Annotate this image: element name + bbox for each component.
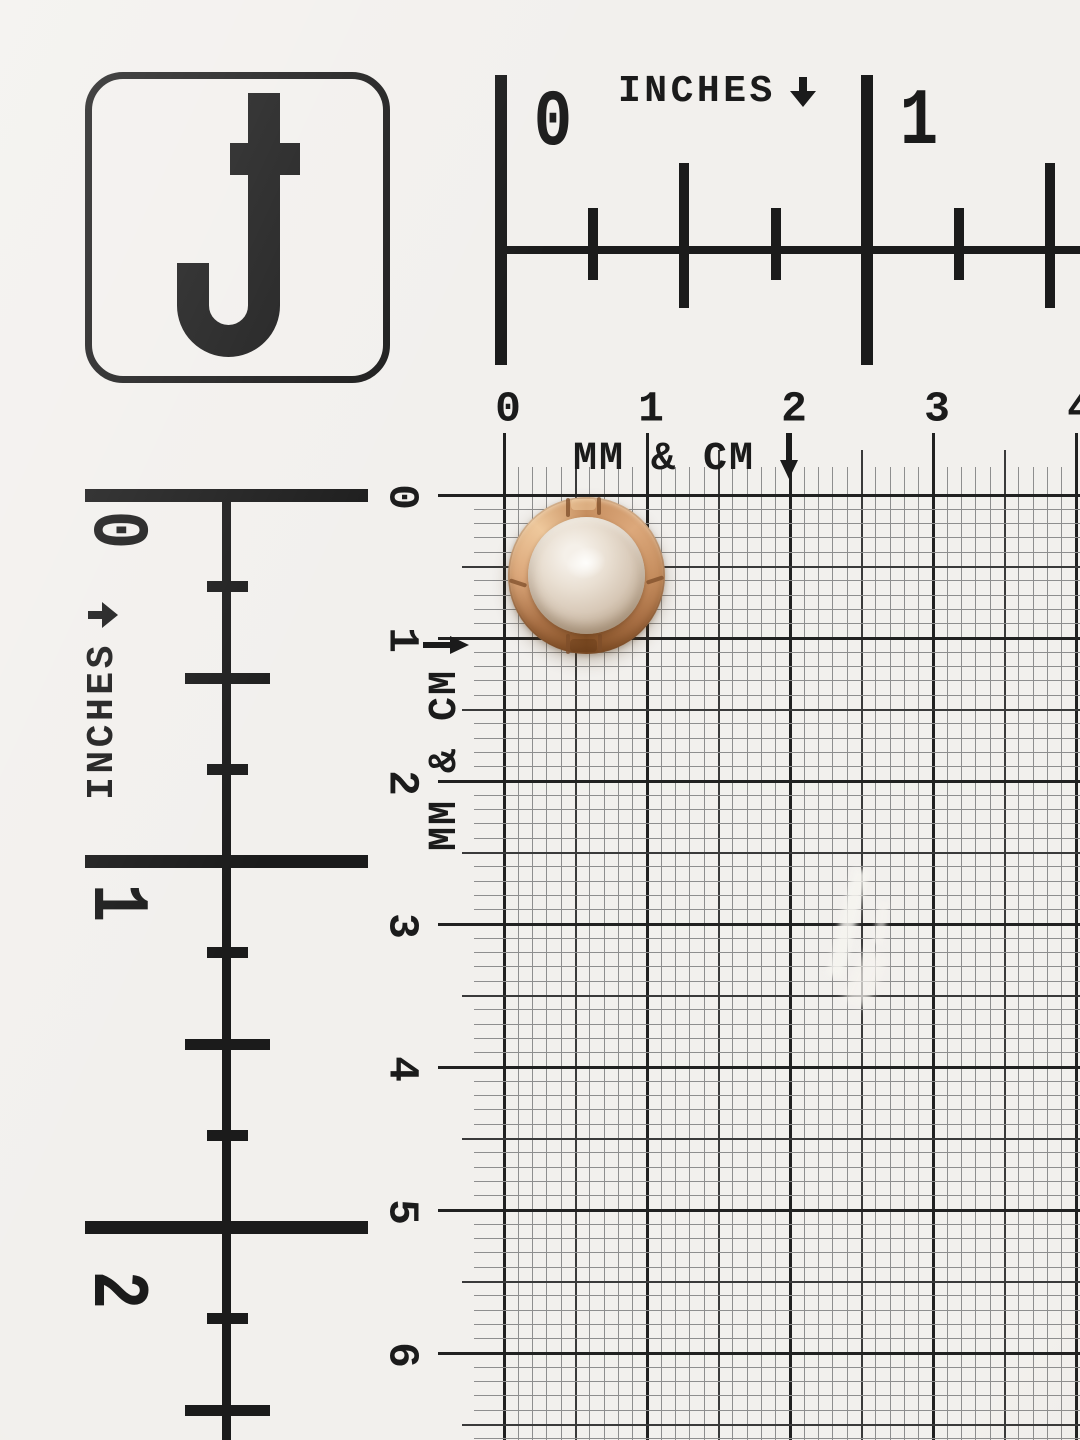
- rim-notch: [571, 499, 596, 510]
- scale-number: 0: [495, 388, 521, 431]
- inch-tick: [679, 163, 689, 308]
- grid-line-vertical: [503, 433, 506, 1440]
- grid-line-horizontal: [474, 723, 1080, 724]
- inches-label-left: INCHES: [83, 595, 123, 805]
- grid-line-horizontal: [474, 1295, 1080, 1296]
- down-arrow-icon: [779, 433, 799, 479]
- grid-line-horizontal: [474, 1167, 1080, 1168]
- grid-line-horizontal: [474, 938, 1080, 939]
- grid-line-horizontal: [474, 1381, 1080, 1382]
- inch-tick: [207, 1130, 248, 1141]
- mm-cm-label-text: MM & CM: [426, 669, 466, 851]
- grid-line-vertical: [775, 467, 776, 1440]
- grid-line-vertical: [904, 467, 905, 1440]
- rim-seam: [598, 634, 602, 652]
- inch-tick: [771, 208, 781, 280]
- grid-line-vertical: [704, 467, 705, 1440]
- logo-j-icon: [92, 79, 383, 376]
- grid-line-horizontal: [474, 666, 1080, 667]
- grid-line-horizontal: [474, 766, 1080, 767]
- grid-line-vertical: [1075, 433, 1078, 1440]
- grid-line-horizontal: [474, 895, 1080, 896]
- grid-line-horizontal: [438, 1352, 1080, 1355]
- inch-tick: [1045, 163, 1055, 308]
- grid-line-vertical: [875, 467, 876, 1440]
- logo-box: [85, 72, 390, 383]
- pearl-button: [508, 497, 665, 654]
- grid-line-vertical: [990, 467, 991, 1440]
- mm-cm-label-left: MM & CM: [423, 626, 469, 860]
- mm-cm-label-top: MM & CM: [573, 433, 799, 479]
- grid-line-horizontal: [474, 1009, 1080, 1010]
- inch-tick: [207, 581, 248, 592]
- inch-tick: [85, 489, 368, 502]
- inch-tick: [588, 208, 598, 280]
- grid-line-horizontal: [474, 1095, 1080, 1096]
- grid-line-horizontal: [474, 1438, 1080, 1439]
- inches-label-top: INCHES: [618, 73, 818, 111]
- scale-number: 0: [75, 511, 155, 549]
- down-arrow-icon: [788, 77, 818, 107]
- grid-line-horizontal: [474, 1324, 1080, 1325]
- grid-line-horizontal: [474, 752, 1080, 753]
- grid-line-horizontal: [474, 966, 1080, 967]
- inch-tick: [85, 1221, 368, 1234]
- scale-number: 3: [924, 388, 950, 431]
- grid-line-vertical: [961, 467, 962, 1440]
- grid-line-horizontal: [474, 1252, 1080, 1253]
- grid-line-vertical: [761, 467, 762, 1440]
- grid-line-horizontal: [474, 1052, 1080, 1053]
- scale-number: 1: [900, 83, 938, 163]
- ruler-baseline: [222, 495, 231, 1440]
- inches-label-text: INCHES: [618, 73, 776, 111]
- grid-line-vertical: [1047, 467, 1048, 1440]
- grid-line-horizontal: [474, 909, 1080, 910]
- ruler-baseline: [497, 246, 1080, 254]
- scale-number: 2: [781, 388, 807, 431]
- grid-line-vertical: [718, 450, 720, 1440]
- inches-label-text: INCHES: [84, 642, 122, 800]
- grid-line-horizontal: [474, 1267, 1080, 1268]
- grid-line-vertical: [847, 467, 848, 1440]
- grid-line-horizontal: [474, 738, 1080, 739]
- grid-line-horizontal: [474, 695, 1080, 696]
- scale-number: 5: [381, 1199, 424, 1225]
- inch-tick: [861, 75, 873, 365]
- scale-number: 4: [1067, 388, 1080, 431]
- grid-line-horizontal: [462, 1281, 1080, 1283]
- grid-line-horizontal: [438, 494, 1080, 497]
- grid-line-horizontal: [474, 881, 1080, 882]
- pearl: [528, 517, 645, 634]
- grid-line-vertical: [932, 433, 935, 1440]
- inch-tick: [954, 208, 964, 280]
- inch-tick: [185, 1405, 270, 1416]
- grid-line-horizontal: [474, 1081, 1080, 1082]
- grid-line-horizontal: [474, 1152, 1080, 1153]
- down-arrow-icon: [88, 600, 118, 630]
- grid-line-horizontal: [474, 652, 1080, 653]
- grid-line-horizontal: [438, 923, 1080, 926]
- grid-line-horizontal: [474, 866, 1080, 867]
- grid-line-horizontal: [474, 1338, 1080, 1339]
- inch-tick: [185, 673, 270, 684]
- grid-line-horizontal: [474, 1109, 1080, 1110]
- scale-number: 4: [381, 1056, 424, 1082]
- grid-line-horizontal: [474, 1224, 1080, 1225]
- grid-line-horizontal: [462, 852, 1080, 854]
- measurement-card-photo: 01234 0123456 MM & CM MM & CM 01 INCHES …: [0, 0, 1080, 1440]
- inch-tick: [207, 947, 248, 958]
- grid-line-vertical: [1033, 467, 1034, 1440]
- grid-line-vertical: [947, 467, 948, 1440]
- grid-line-horizontal: [474, 1124, 1080, 1125]
- grid-line-horizontal: [474, 809, 1080, 810]
- grid-line-vertical: [732, 467, 733, 1440]
- grid-line-horizontal: [474, 1195, 1080, 1196]
- scale-number: 6: [381, 1342, 424, 1368]
- inch-tick: [207, 764, 248, 775]
- inch-tick: [495, 75, 507, 365]
- grid-line-vertical: [861, 450, 863, 1440]
- scale-number: 1: [381, 627, 424, 653]
- grid-line-vertical: [975, 467, 976, 1440]
- grid-line-horizontal: [438, 780, 1080, 783]
- rim-seam: [566, 498, 570, 517]
- grid-line-horizontal: [462, 1138, 1080, 1140]
- grid-line-horizontal: [474, 981, 1080, 982]
- grid-line-horizontal: [474, 1038, 1080, 1039]
- grid-line-vertical: [818, 467, 819, 1440]
- grid-line-horizontal: [462, 1424, 1080, 1426]
- scale-number: 1: [75, 884, 155, 922]
- mm-cm-label-text: MM & CM: [573, 440, 755, 480]
- grid-line-horizontal: [474, 1395, 1080, 1396]
- grid-line-vertical: [747, 467, 748, 1440]
- grid-line-horizontal: [438, 1066, 1080, 1069]
- grid-line-vertical: [890, 467, 891, 1440]
- grid-line-horizontal: [462, 995, 1080, 997]
- paper-scuff: [842, 949, 888, 1009]
- grid-line-horizontal: [462, 709, 1080, 711]
- inch-tick: [85, 855, 368, 868]
- grid-line-vertical: [661, 467, 662, 1440]
- grid-line-horizontal: [474, 795, 1080, 796]
- grid-line-vertical: [789, 433, 792, 1440]
- grid-line-vertical: [1018, 467, 1019, 1440]
- scale-number: 2: [381, 770, 424, 796]
- grid-line-horizontal: [474, 1238, 1080, 1239]
- grid-line-vertical: [832, 467, 833, 1440]
- scale-number: 2: [75, 1271, 155, 1309]
- grid-line-horizontal: [474, 952, 1080, 953]
- grid-line-horizontal: [474, 1024, 1080, 1025]
- grid-line-vertical: [1004, 450, 1006, 1440]
- grid-line-horizontal: [438, 637, 1080, 640]
- grid-line-horizontal: [474, 1310, 1080, 1311]
- scale-number: 0: [381, 484, 424, 510]
- grid-line-horizontal: [474, 1410, 1080, 1411]
- grid-line-horizontal: [474, 838, 1080, 839]
- grid-line-horizontal: [438, 1209, 1080, 1212]
- scale-number: 1: [638, 388, 664, 431]
- pearl-highlight: [553, 535, 618, 592]
- grid-line-vertical: [689, 467, 690, 1440]
- grid-line-horizontal: [474, 1367, 1080, 1368]
- scale-number: 0: [534, 84, 572, 164]
- inch-tick: [207, 1313, 248, 1324]
- grid-line-horizontal: [474, 680, 1080, 681]
- grid-line-vertical: [1061, 467, 1062, 1440]
- rim-seam: [597, 497, 601, 515]
- rim-notch: [570, 639, 597, 652]
- grid-line-vertical: [804, 467, 805, 1440]
- inch-tick: [185, 1039, 270, 1050]
- scale-number: 3: [381, 913, 424, 939]
- down-arrow-icon: [423, 635, 469, 655]
- grid-line-vertical: [918, 467, 919, 1440]
- grid-line-horizontal: [474, 823, 1080, 824]
- grid-line-vertical: [675, 467, 676, 1440]
- grid-line-horizontal: [474, 1181, 1080, 1182]
